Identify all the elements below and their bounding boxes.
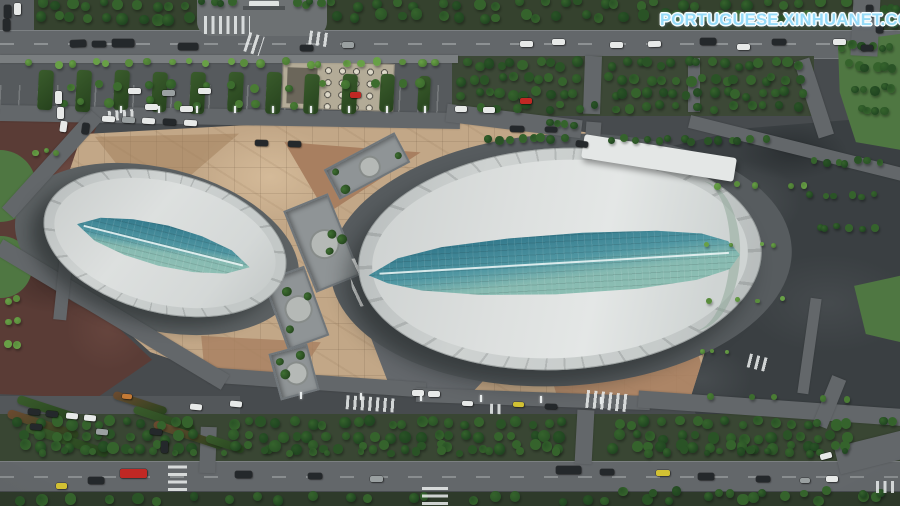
lamps-layer [0, 0, 900, 506]
aerial-photo-sports-complex: PORTUGUESE.XINHUANET.COM [0, 0, 900, 506]
street-lamp [540, 396, 542, 403]
street-lamp [234, 106, 236, 113]
street-lamp [300, 392, 302, 399]
watermark-text: PORTUGUESE.XINHUANET.COM [660, 10, 900, 30]
street-lamp [120, 106, 122, 113]
street-lamp [272, 106, 274, 113]
street-lamp [158, 106, 160, 113]
street-lamp [310, 106, 312, 113]
street-lamp [480, 395, 482, 402]
watermark: PORTUGUESE.XINHUANET.COM [660, 10, 891, 32]
street-lamp [196, 106, 198, 113]
street-lamp [424, 106, 426, 113]
street-lamp [360, 393, 362, 400]
street-lamp [348, 106, 350, 113]
street-lamp [420, 394, 422, 401]
street-lamp [600, 397, 602, 404]
street-lamp [386, 106, 388, 113]
